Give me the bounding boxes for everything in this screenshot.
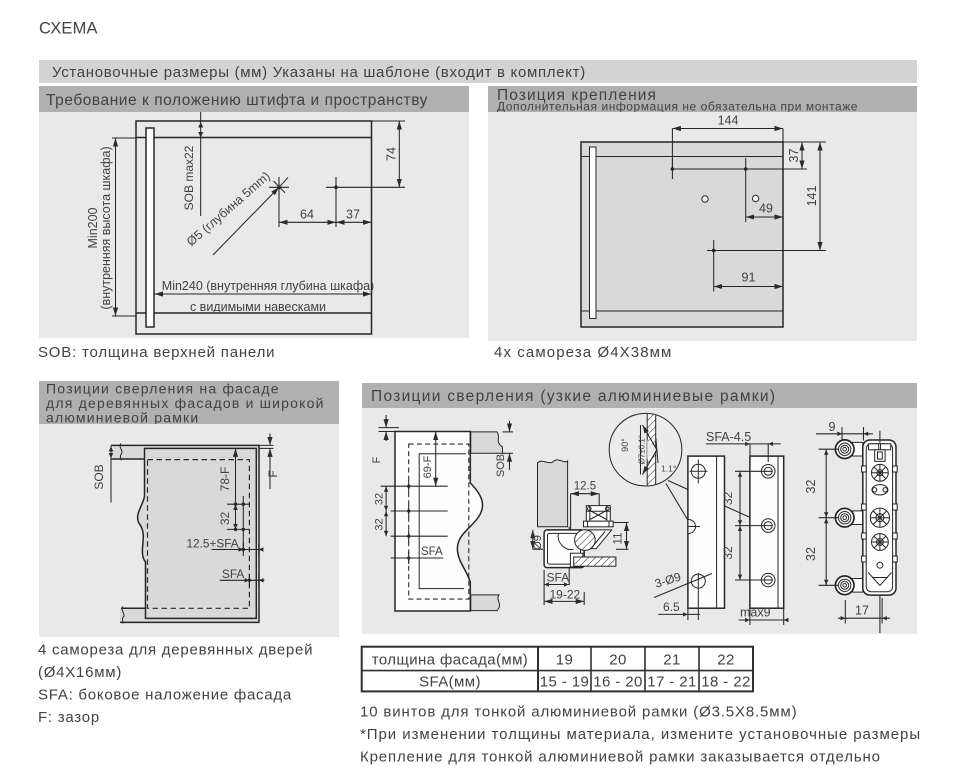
- svg-text:9: 9: [829, 420, 836, 434]
- svg-text:74: 74: [385, 147, 399, 161]
- svg-text:с видимыми навесками: с видимыми навесками: [190, 300, 326, 314]
- svg-text:SOB: толщина верхней панели: SOB: толщина верхней панели: [38, 344, 275, 361]
- svg-text:F: зазор: F: зазор: [38, 709, 100, 726]
- svg-text:(Ø4Х16мм): (Ø4Х16мм): [38, 664, 122, 681]
- svg-text:Min240 (внутренняя глубина шка: Min240 (внутренняя глубина шкафа): [162, 279, 374, 293]
- svg-text:32: 32: [804, 480, 818, 494]
- svg-text:(внутренняя высота шкафа): (внутренняя высота шкафа): [99, 146, 113, 309]
- svg-text:Установочные размеры (мм) Ука: Установочные размеры (мм) Указаны на шаб…: [52, 64, 586, 81]
- svg-text:32: 32: [374, 518, 386, 530]
- svg-text:18 - 22: 18 - 22: [701, 674, 751, 691]
- svg-text:Крепление для тонкой алюминиев: Крепление для тонкой алюминиевой рамки з…: [360, 749, 881, 766]
- svg-text:22: 22: [717, 652, 735, 669]
- svg-text:F: F: [266, 470, 280, 477]
- svg-text:Дополнительная информация не о: Дополнительная информация не обязательна…: [497, 100, 858, 114]
- svg-text:37: 37: [346, 208, 360, 222]
- svg-text:21: 21: [663, 652, 681, 669]
- svg-text:17: 17: [855, 604, 869, 618]
- svg-text:19-22: 19-22: [550, 588, 581, 602]
- svg-text:4х самореза Ø4Х38мм: 4х самореза Ø4Х38мм: [494, 344, 672, 361]
- svg-text:SFA-4.5: SFA-4.5: [706, 430, 751, 444]
- svg-text:толщина фасада(мм): толщина фасада(мм): [372, 652, 528, 669]
- svg-text:SFA: SFA: [421, 546, 443, 558]
- svg-text:6.5: 6.5: [663, 600, 680, 614]
- svg-text:SFA: боковое наложение фасада: SFA: боковое наложение фасада: [38, 687, 292, 704]
- svg-text:SFA(мм): SFA(мм): [419, 674, 481, 691]
- svg-text:32: 32: [721, 492, 735, 506]
- svg-text:алюминиевой рамки: алюминиевой рамки: [46, 410, 199, 426]
- svg-text:SOB: SOB: [495, 454, 507, 477]
- svg-text:141: 141: [805, 186, 819, 207]
- svg-text:17 - 21: 17 - 21: [647, 674, 697, 691]
- svg-text:20: 20: [609, 652, 627, 669]
- svg-text:32: 32: [218, 512, 232, 526]
- svg-text:СХЕМА: СХЕМА: [39, 20, 98, 38]
- svg-text:SOB: SOB: [92, 464, 106, 489]
- svg-text:32: 32: [374, 493, 386, 505]
- svg-text:90°: 90°: [620, 438, 630, 452]
- svg-text:SFA: SFA: [547, 571, 570, 585]
- svg-text:12.5: 12.5: [574, 481, 596, 493]
- svg-text:F: F: [371, 456, 383, 463]
- svg-text:Min200: Min200: [86, 207, 100, 248]
- svg-text:*При изменении толщины материа: *При изменении толщины материала, измени…: [360, 726, 921, 743]
- svg-text:69-F: 69-F: [422, 455, 434, 478]
- svg-text:49: 49: [759, 202, 773, 216]
- svg-text:Ø9: Ø9: [532, 535, 544, 550]
- svg-text:11: 11: [613, 533, 625, 545]
- svg-text:4 самореза для деревянных двер: 4 самореза для деревянных дверей: [38, 642, 313, 659]
- svg-text:12.5+SFA: 12.5+SFA: [187, 537, 239, 551]
- svg-text:19: 19: [556, 652, 574, 669]
- svg-text:32: 32: [721, 546, 735, 560]
- svg-text:32: 32: [804, 547, 818, 561]
- svg-text:SOB max22: SOB max22: [182, 145, 196, 210]
- svg-text:91: 91: [742, 271, 756, 285]
- svg-text:78-F: 78-F: [218, 467, 232, 492]
- svg-text:SFA: SFA: [222, 567, 244, 581]
- svg-text:Позиции сверления (узкие алюми: Позиции сверления (узкие алюминиевые рам…: [371, 388, 776, 405]
- svg-text:10 винтов для тонкой алюминиев: 10 винтов для тонкой алюминиевой рамки (…: [360, 704, 797, 721]
- svg-text:64: 64: [300, 208, 314, 222]
- svg-text:144: 144: [718, 114, 739, 128]
- svg-text:1.1°: 1.1°: [661, 464, 676, 474]
- svg-text:Требование к положению штифта: Требование к положению штифта и простран…: [46, 92, 428, 109]
- svg-text:37: 37: [787, 149, 801, 163]
- svg-text:16 - 20: 16 - 20: [593, 674, 643, 691]
- svg-text:15 - 19: 15 - 19: [540, 674, 590, 691]
- svg-text:Ø7±0.1°: Ø7±0.1°: [637, 435, 646, 464]
- svg-text:max9: max9: [740, 606, 771, 620]
